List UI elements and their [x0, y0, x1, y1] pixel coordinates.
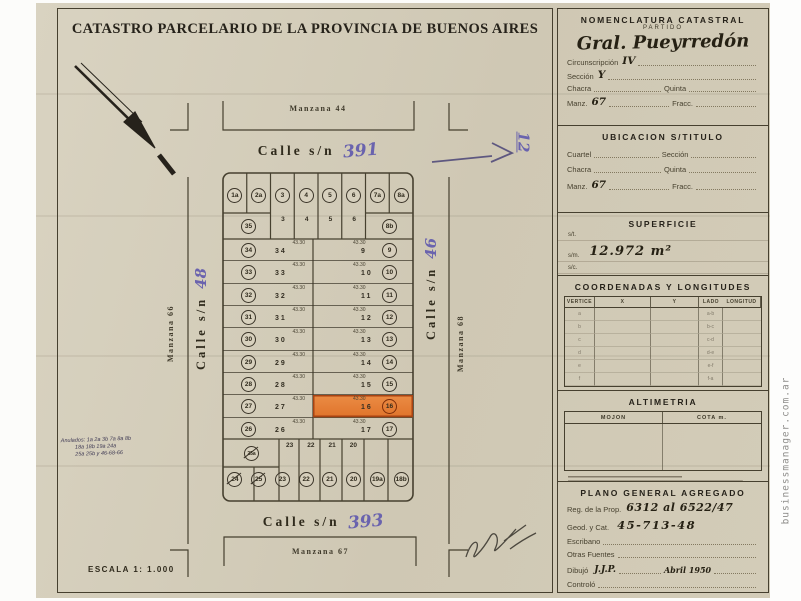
longitud-cell [723, 347, 761, 360]
lot-circle: 15 [382, 377, 397, 392]
lot-row: 43.30 16 16 [313, 395, 413, 417]
superficie-value: 12.972 m² [589, 244, 672, 259]
lot-column-right: 43.30 9 9 43.30 10 10 43.30 11 11 43.30 … [313, 239, 413, 439]
longitud-cell [723, 373, 761, 386]
lot-circle: 4 [299, 188, 314, 203]
coordenadas-column-header: Y [651, 297, 699, 308]
x-cell [595, 321, 651, 334]
lot-circle: 11 [382, 288, 397, 303]
pencil-arrow-icon [432, 143, 512, 162]
field-controlo: Controló [558, 580, 768, 589]
lot-cell: 24 [223, 471, 247, 487]
calle-left-printed: Calle s/n [194, 297, 209, 370]
lot-dimension: 43.30 [292, 396, 305, 402]
lot-number: 3 [281, 216, 285, 223]
calle-bottom-number-handwritten: 393 [347, 510, 384, 533]
lot-circle: 7a [370, 188, 385, 203]
lot-number: 6 [352, 216, 356, 223]
lot-circle: 32 [241, 288, 256, 303]
lot-cell: 8a [389, 187, 413, 203]
lot-number: 15 [361, 382, 373, 389]
manzana-value: 67 [591, 179, 606, 191]
anulados-note-handwritten: Anulados: 1a 2a 3b 7a 8a 8b18a 18b 19a 2… [61, 436, 132, 459]
geodesia-value: 45-713-48 [617, 518, 696, 532]
lot-row: 43.30 9 9 [313, 239, 413, 261]
catastral-form-panel: NOMENCLATURA CATASTRAL PARTIDO Gral. Pue… [557, 8, 769, 593]
lot-cell: 22 [294, 471, 318, 487]
lot-row-top: 1a 2a 3 4 5 6 7a 8a [223, 187, 413, 203]
calle-left-number-handwritten: 48 [192, 268, 210, 289]
y-cell [651, 347, 699, 360]
lot-row: 29 29 43.30 [223, 351, 313, 373]
cota-header: COTA m. [663, 412, 761, 423]
watermark-strip: businessmanager.com.ar [770, 0, 801, 601]
lot-row-bottom: 24 25 23 22 21 20 19a 18b [223, 471, 413, 487]
nomenclatura-title: NOMENCLATURA CATASTRAL [562, 15, 764, 25]
lot-row: 43.30 13 13 [313, 328, 413, 350]
vertice-cell: b [565, 321, 595, 334]
lot-cell: 5 [318, 187, 342, 203]
section-ubicacion: UBICACION S/TITULO Cuartel Sección Chacr… [558, 125, 768, 212]
section-coordenadas: COORDENADAS Y LONGITUDES VERTICEXYLADOLO… [558, 275, 768, 390]
lot-number: 30 [275, 337, 287, 344]
y-cell [651, 308, 699, 321]
lot-dimension: 43.30 [292, 240, 305, 246]
lado-cell: d-e [699, 347, 723, 360]
longitud-cell [723, 334, 761, 347]
altimetria-table: MOJON COTA m. [564, 411, 762, 471]
lot-circle: 21 [322, 472, 337, 487]
lot-cell: 2a [247, 187, 271, 203]
lot-circle: 31 [241, 310, 256, 325]
lot-circle: 1a [227, 188, 242, 203]
lot-cell: 1a [223, 187, 247, 203]
lot-dimension: 43.30 [353, 329, 366, 335]
watermark-text: businessmanager.com.ar [780, 377, 791, 525]
lot-circle: 8a [394, 188, 409, 203]
lot-number: 23 [286, 442, 293, 449]
lot-circle: 14 [382, 355, 397, 370]
lot-circle-8b: 8b [382, 219, 397, 234]
calle-right-number-handwritten: 46 [422, 238, 440, 259]
lot-circle: 29 [241, 355, 256, 370]
lot-circle: 3 [275, 188, 290, 203]
lado-cell: f-a [699, 373, 723, 386]
vertice-cell: d [565, 347, 595, 360]
field-chacra-quinta: Chacra Quinta [558, 165, 768, 174]
lot-circle-35: 35 [241, 219, 256, 234]
lot-cell: 23 [271, 471, 295, 487]
lot-row: 26 26 43.30 [223, 418, 313, 439]
section-nomenclatura: NOMENCLATURA CATASTRAL PARTIDO Gral. Pue… [558, 15, 768, 125]
section-altimetria: ALTIMETRIA MOJON COTA m. [558, 390, 768, 481]
lot-number: 21 [329, 442, 336, 449]
lot-row: 43.30 10 10 [313, 261, 413, 283]
lot-row: 27 27 43.30 [223, 395, 313, 417]
lot-dimension: 43.30 [353, 285, 366, 291]
lado-cell: a-b [699, 308, 723, 321]
street-right-label: Calle s/n 46 [421, 234, 441, 344]
lot-circle: 9 [382, 243, 397, 258]
superficie-title: SUPERFICIE [562, 219, 764, 229]
section-plano-general: PLANO GENERAL AGREGADO Reg. de la Prop. … [558, 481, 768, 601]
lot-circle: 10 [382, 265, 397, 280]
lot-subnumbers-top: 3456 [271, 216, 366, 223]
lado-cell: e-f [699, 360, 723, 373]
lot-circle: 30 [241, 332, 256, 347]
lot-cell: 6 [342, 187, 366, 203]
lot-number: 33 [275, 270, 287, 277]
lot-circle: 13 [382, 332, 397, 347]
field-seccion: Sección Y [558, 69, 768, 81]
calle-bottom-printed: Calle s/n [263, 514, 340, 530]
lot-row: 32 32 43.30 [223, 284, 313, 306]
lot-row: 30 30 43.30 [223, 328, 313, 350]
lot-circle: 33 [241, 265, 256, 280]
field-manzana-fraccion: Manz. 67 Fracc. [558, 96, 768, 108]
lot-row: 43.30 12 12 [313, 306, 413, 328]
lado-cell: c-d [699, 334, 723, 347]
lot-cell: 20 [342, 471, 366, 487]
fecha-value: Abril 1950 [664, 565, 711, 575]
lot-dimension: 43.30 [353, 396, 366, 402]
field-registro: Reg. de la Prop. 6312 al 6522/47 [558, 501, 768, 514]
lot-number: 29 [275, 360, 287, 367]
y-cell [651, 321, 699, 334]
field-blank-line [608, 72, 756, 80]
hand-drawn-arrow-icon [75, 63, 174, 174]
lot-circle: 26 [241, 422, 256, 437]
field-blank-line [638, 58, 756, 66]
lot-row: 43.30 15 15 [313, 373, 413, 395]
longitud-cell [723, 360, 761, 373]
lot-circle: 22 [299, 472, 314, 487]
lot-row: 43.30 17 17 [313, 418, 413, 439]
y-cell [651, 360, 699, 373]
lado-cell: b-c [699, 321, 723, 334]
y-cell [651, 334, 699, 347]
longitud-cell [723, 308, 761, 321]
field-cuartel-seccion: Cuartel Sección [558, 150, 768, 159]
lot-cell: 18b [389, 471, 413, 487]
lot-cell: 4 [294, 187, 318, 203]
x-cell [595, 308, 651, 321]
lot-circle: 28 [241, 377, 256, 392]
manzana-value: 67 [591, 96, 606, 108]
lot-row: 43.30 14 14 [313, 351, 413, 373]
signature-icon [466, 525, 536, 557]
y-cell [651, 373, 699, 386]
section-superficie: SUPERFICIE s/t. s/m. 12.972 m² s/c. [558, 212, 768, 275]
street-top-label: Calle s/n 391 [223, 141, 413, 161]
lot-circle: 27 [241, 399, 256, 414]
field-otras-fuentes: Otras Fuentes [558, 550, 768, 559]
lot-circle: 24 [227, 472, 242, 487]
lot-circle: 16 [382, 399, 397, 414]
longitud-cell [723, 321, 761, 334]
x-cell [595, 360, 651, 373]
lot-circle: 6 [346, 188, 361, 203]
lot-circle: 34 [241, 243, 256, 258]
field-manzana-fraccion: Manz. 67 Fracc. [558, 179, 768, 191]
lot-dimension: 43.30 [292, 419, 305, 425]
x-cell [595, 347, 651, 360]
lot-subnumbers-bottom: 23222120 [279, 442, 364, 449]
field-escribano: Escribano [558, 537, 768, 546]
lot-dimension: 43.30 [353, 419, 366, 425]
lot-number: 12 [361, 315, 373, 322]
lot-number: 17 [361, 427, 373, 434]
lot-cell: 7a [366, 187, 390, 203]
map-box: CATASTRO PARCELARIO DE LA PROVINCIA DE B… [57, 8, 553, 593]
street-bottom-label: Calle s/n 393 [223, 512, 423, 532]
lot-number: 32 [275, 293, 287, 300]
lot-dimension: 43.30 [353, 240, 366, 246]
superficie-sc-row: s/c. [558, 265, 768, 274]
lot-circle: 23 [275, 472, 290, 487]
field-chacra-quinta: Chacra Quinta [558, 84, 768, 93]
lot-dimension: 43.30 [292, 307, 305, 313]
lot-number: 9 [361, 248, 367, 255]
lot-row: 28 28 43.30 [223, 373, 313, 395]
lot-dimension: 43.30 [292, 329, 305, 335]
lot-dimension: 43.30 [292, 285, 305, 291]
x-cell [595, 373, 651, 386]
lot-column-left: 34 34 43.30 33 33 43.30 32 32 43.30 31 3… [223, 239, 313, 439]
registro-value: 6312 al 6522/47 [626, 501, 733, 514]
vertice-cell: e [565, 360, 595, 373]
superficie-st-row: s/t. [558, 232, 768, 241]
lot-row: 34 34 43.30 [223, 239, 313, 261]
coordenadas-table: VERTICEXYLADOLONGITUD a a-b b b-c [564, 296, 762, 387]
plano-title: PLANO GENERAL AGREGADO [562, 488, 764, 498]
manzana-68-label: Manzana 68 [456, 291, 465, 396]
document-title: CATASTRO PARCELARIO DE LA PROVINCIA DE B… [58, 21, 552, 38]
lot-number: 34 [275, 248, 287, 255]
lot-dimension: 43.30 [292, 374, 305, 380]
x-cell [595, 334, 651, 347]
vertice-cell: a [565, 308, 595, 321]
lot-dimension: 43.30 [353, 352, 366, 358]
field-geodesia: Geod. y Cat. 45-713-48 [558, 518, 768, 532]
lot-number: 11 [361, 293, 372, 300]
calle-top-number-handwritten: 391 [342, 139, 379, 162]
lot-cell: 19a [366, 471, 390, 487]
partido-value: Gral. Pueyrredón [558, 30, 768, 55]
lot-number: 13 [361, 337, 373, 344]
lot-dimension: 43.30 [292, 262, 305, 268]
coordenadas-column-header: X [595, 297, 651, 308]
lot-dimension: 43.30 [292, 352, 305, 358]
vertice-cell: f [565, 373, 595, 386]
scale-label: ESCALA 1: 1.000 [88, 565, 175, 574]
lot-number: 27 [275, 404, 287, 411]
seccion-value: Y [598, 69, 606, 81]
circunscripcion-value: IV [622, 55, 635, 67]
coordenadas-column-header: LONGITUD [723, 297, 761, 308]
manzana-66-label: Manzana 66 [166, 281, 175, 386]
ubicacion-title: UBICACION S/TITULO [562, 132, 764, 142]
lot-circle: 12 [382, 310, 397, 325]
lot-circle: 25 [251, 472, 266, 487]
lot-cell: 25 [247, 471, 271, 487]
vertice-cell: c [565, 334, 595, 347]
lot-number: 20 [350, 442, 357, 449]
lot-number: 5 [329, 216, 333, 223]
coordenadas-column-header: VERTICE [565, 297, 595, 308]
lot-cell: 21 [318, 471, 342, 487]
calle-right-printed: Calle s/n [424, 267, 439, 340]
lot-row: 31 31 43.30 [223, 306, 313, 328]
street-left-label: Calle s/n 48 [191, 264, 211, 374]
lot-circle-crossed-25a: 25a [244, 446, 259, 461]
lot-circle: 19a [370, 472, 385, 487]
lot-dimension: 43.30 [353, 307, 366, 313]
manzana-67-label: Manzana 67 [223, 547, 418, 556]
superficie-sm-row: s/m. 12.972 m² [558, 244, 768, 262]
lot-circle: 18b [394, 472, 409, 487]
mojon-header: MOJON [565, 412, 663, 423]
lot-number: 26 [275, 427, 287, 434]
scanned-cadastral-document: CATASTRO PARCELARIO DE LA PROVINCIA DE B… [0, 0, 801, 601]
lot-dimension: 43.30 [353, 374, 366, 380]
altimetria-title: ALTIMETRIA [562, 397, 764, 407]
lot-circle: 5 [322, 188, 337, 203]
altimetria-empty-body [565, 424, 761, 470]
manzana-44-label: Manzana 44 [223, 104, 413, 113]
rotated-note-handwritten: 12 [514, 132, 532, 153]
lot-number: 31 [275, 315, 287, 322]
lot-row: 33 33 43.30 [223, 261, 313, 283]
lot-number: 16 [361, 404, 373, 411]
lot-number: 28 [275, 382, 287, 389]
lot-circle: 17 [382, 422, 397, 437]
field-dibujo: Dibujó J.J.P. Abril 1950 [558, 565, 768, 575]
coordenadas-title: COORDENADAS Y LONGITUDES [562, 282, 764, 292]
lot-circle: 20 [346, 472, 361, 487]
lot-circle: 2a [251, 188, 266, 203]
calle-top-printed: Calle s/n [258, 143, 335, 159]
field-circunscripcion: Circunscripción IV [558, 55, 768, 67]
dibujo-value: J.J.P. [594, 565, 616, 575]
lot-number: 4 [305, 216, 309, 223]
coordenadas-column-header: LADO [699, 297, 723, 308]
lot-number: 22 [307, 442, 314, 449]
lot-dimension: 43.30 [353, 262, 366, 268]
lot-cell: 3 [271, 187, 295, 203]
lot-number: 10 [361, 270, 373, 277]
lot-row: 43.30 11 11 [313, 284, 413, 306]
lot-number: 14 [361, 360, 373, 367]
